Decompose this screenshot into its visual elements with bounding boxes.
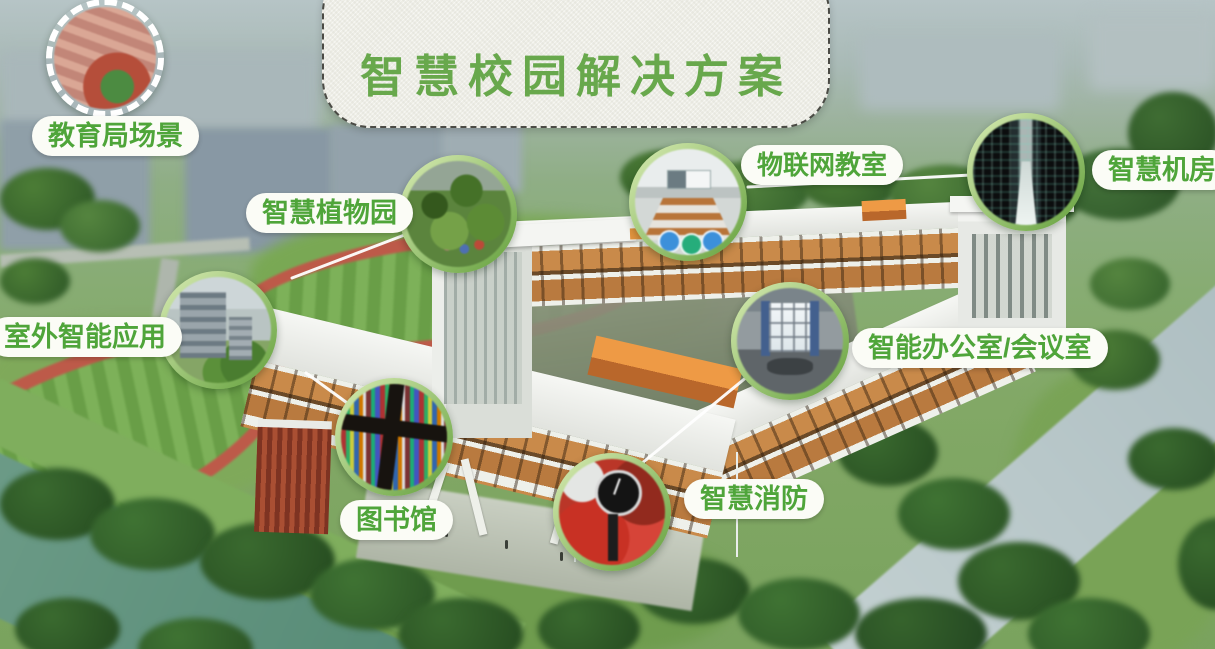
callout-bubble-botanical bbox=[399, 155, 517, 273]
blue-app-icon bbox=[701, 230, 724, 253]
callout-label-fire: 智慧消防 bbox=[684, 479, 824, 519]
leader-office bbox=[641, 376, 748, 464]
server-room-aisle bbox=[1015, 161, 1036, 225]
fire-pipe bbox=[608, 514, 619, 561]
callout-bubble-server-room bbox=[967, 113, 1085, 231]
callout-label-iot-classroom: 物联网教室 bbox=[741, 145, 903, 185]
smart-campus-solution-diagram: 教育局场景 智慧植物园 物联网教室 智慧机房 室外智能应用 bbox=[0, 0, 1215, 649]
callout-label-library: 图书馆 bbox=[340, 500, 453, 540]
meeting-table bbox=[767, 358, 814, 375]
fire-equipment-photo bbox=[559, 459, 665, 565]
classroom-whiteboard bbox=[667, 170, 711, 189]
bookshelf-frame bbox=[376, 384, 405, 490]
blue-app-icon bbox=[658, 230, 681, 253]
office-window bbox=[769, 303, 811, 352]
callout-label-edu-bureau: 教育局场景 bbox=[32, 116, 199, 156]
education-bureau-campus-photo bbox=[54, 7, 156, 109]
pressure-gauge bbox=[595, 470, 642, 517]
leader-library bbox=[306, 373, 350, 405]
outdoor-building-block bbox=[229, 317, 252, 359]
callout-label-server-room: 智慧机房 bbox=[1092, 150, 1215, 190]
callout-label-botanical: 智慧植物园 bbox=[246, 193, 413, 233]
page-title: 智慧校园解决方案 bbox=[324, 40, 828, 105]
title-banner: 智慧校园解决方案 bbox=[322, 0, 830, 128]
callout-bubble-iot-classroom bbox=[629, 143, 747, 261]
green-app-icon bbox=[680, 233, 703, 255]
window-curtain bbox=[810, 301, 818, 356]
leader-botanical bbox=[292, 234, 407, 278]
botanical-garden-photo bbox=[405, 161, 511, 267]
callout-bubble-office bbox=[731, 282, 849, 400]
bookshelf-photo bbox=[341, 384, 447, 490]
iot-classroom-photo bbox=[635, 149, 741, 255]
callout-label-office: 智能办公室/会议室 bbox=[852, 328, 1108, 368]
callout-bubble-library bbox=[335, 378, 453, 496]
server-racks-photo bbox=[973, 119, 1079, 225]
callout-bubble-fire bbox=[553, 453, 671, 571]
callout-label-outdoor: 室外智能应用 bbox=[0, 317, 182, 357]
outdoor-building-block bbox=[180, 292, 227, 358]
meeting-room-photo bbox=[737, 288, 843, 394]
callout-bubble-edu-bureau bbox=[46, 0, 164, 117]
